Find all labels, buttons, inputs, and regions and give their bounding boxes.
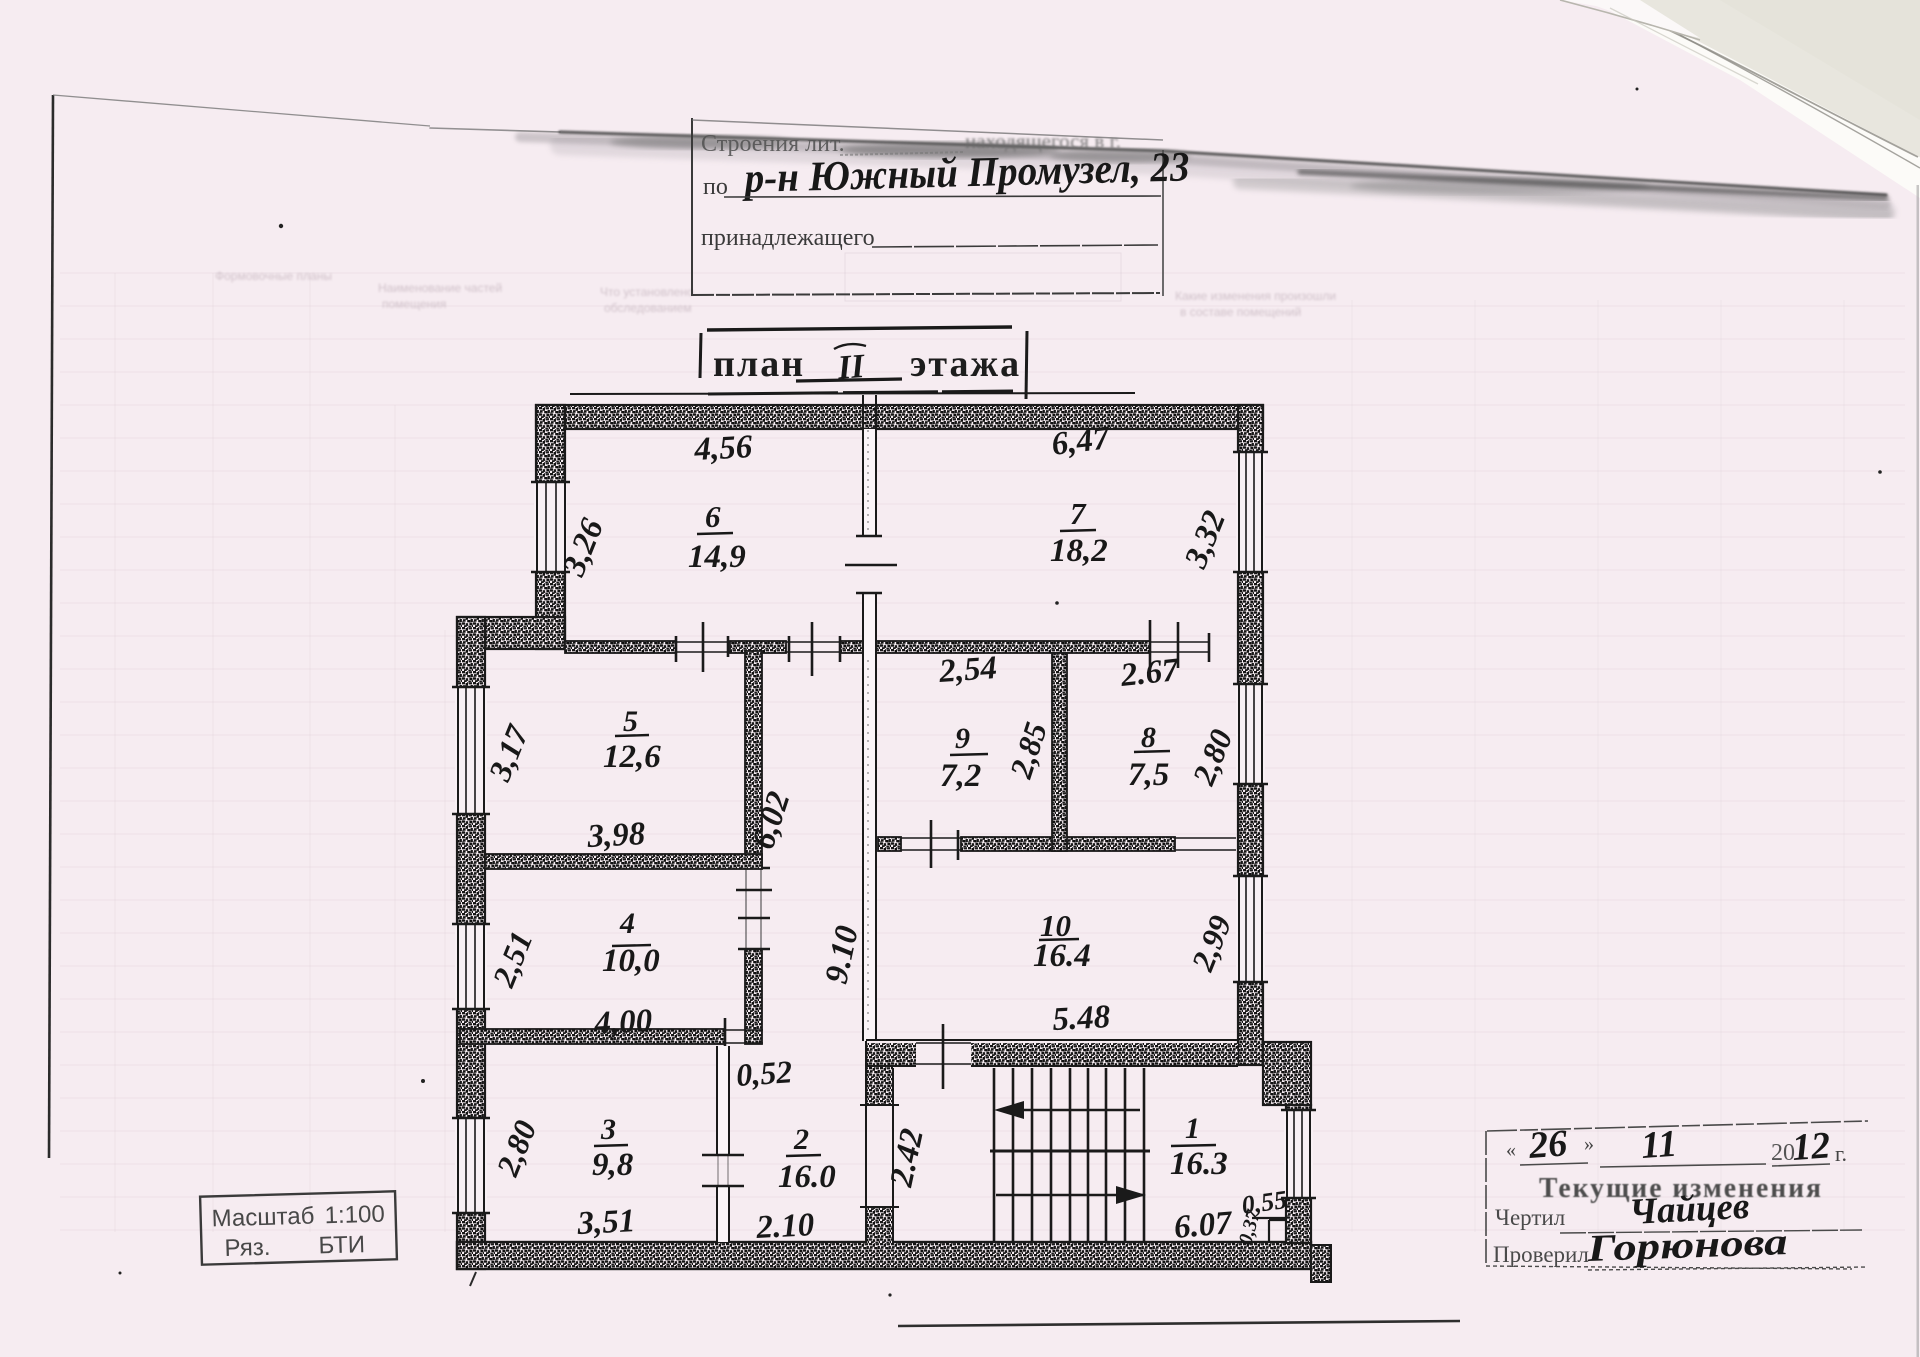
svg-text:1: 1 xyxy=(1185,1112,1200,1145)
svg-text:7: 7 xyxy=(1070,496,1087,531)
svg-text:3,98: 3,98 xyxy=(586,816,647,855)
svg-text:16.4: 16.4 xyxy=(1033,938,1091,974)
svg-text:9: 9 xyxy=(955,722,970,755)
svg-text:6.07: 6.07 xyxy=(1173,1205,1235,1246)
svg-text:8: 8 xyxy=(1141,721,1156,754)
svg-text:11: 11 xyxy=(1640,1123,1679,1167)
svg-text:6,47: 6,47 xyxy=(1050,420,1113,463)
svg-text:в составе помещений: в составе помещений xyxy=(1180,305,1301,319)
svg-text:принадлежащего: принадлежащего xyxy=(701,225,875,251)
svg-text:обследованием: обследованием xyxy=(604,301,692,315)
svg-text:Проверил: Проверил xyxy=(1493,1242,1589,1267)
svg-text:2: 2 xyxy=(793,1123,809,1156)
svg-text:12: 12 xyxy=(1791,1124,1832,1169)
svg-text:18,2: 18,2 xyxy=(1050,533,1108,569)
svg-text:0,52: 0,52 xyxy=(735,1053,793,1093)
svg-text:7,2: 7,2 xyxy=(940,758,981,794)
svg-text:4,00: 4,00 xyxy=(593,1003,654,1042)
svg-text:Чертил: Чертил xyxy=(1495,1205,1565,1230)
svg-text:5: 5 xyxy=(623,705,638,738)
svg-text:7,5: 7,5 xyxy=(1128,757,1169,793)
svg-text:10,0: 10,0 xyxy=(602,943,660,979)
svg-text:6: 6 xyxy=(705,499,721,534)
svg-text:2.67: 2.67 xyxy=(1118,652,1182,694)
svg-text:Какие изменения произошли: Какие изменения произошли xyxy=(1175,289,1336,303)
svg-text:5.48: 5.48 xyxy=(1052,999,1112,1038)
svg-text:26: 26 xyxy=(1527,1122,1569,1167)
svg-text:1:100: 1:100 xyxy=(324,1201,385,1230)
svg-text:3,51: 3,51 xyxy=(576,1203,637,1242)
svg-text:Наименование частей: Наименование частей xyxy=(378,281,502,295)
svg-text:9,8: 9,8 xyxy=(592,1147,633,1183)
svg-text:4,56: 4,56 xyxy=(693,429,754,468)
svg-text:»: » xyxy=(1584,1133,1594,1155)
svg-text:Ряз.: Ряз. xyxy=(224,1234,271,1262)
svg-text:2.10: 2.10 xyxy=(755,1207,816,1246)
svg-text:этажа: этажа xyxy=(910,343,1021,385)
svg-text:Что установлено: Что установлено xyxy=(600,285,694,299)
svg-text:«: « xyxy=(1506,1139,1516,1161)
svg-text:3: 3 xyxy=(600,1113,616,1146)
svg-text:по: по xyxy=(703,174,728,200)
svg-text:16.0: 16.0 xyxy=(778,1159,836,1195)
svg-text:12,6: 12,6 xyxy=(603,739,661,775)
svg-text:2,54: 2,54 xyxy=(937,650,998,690)
svg-text:г.: г. xyxy=(1835,1141,1847,1166)
svg-text:16.3: 16.3 xyxy=(1170,1146,1228,1182)
svg-text:помещения: помещения xyxy=(382,297,446,311)
svg-text:план: план xyxy=(713,343,805,385)
svg-text:Масштаб: Масштаб xyxy=(211,1203,314,1233)
svg-text:4: 4 xyxy=(619,907,635,940)
svg-text:14,9: 14,9 xyxy=(688,539,746,575)
svg-text:Формовочные планы: Формовочные планы xyxy=(215,269,332,283)
svg-text:БТИ: БТИ xyxy=(318,1231,365,1259)
svg-text:Горюнова: Горюнова xyxy=(1586,1221,1789,1270)
